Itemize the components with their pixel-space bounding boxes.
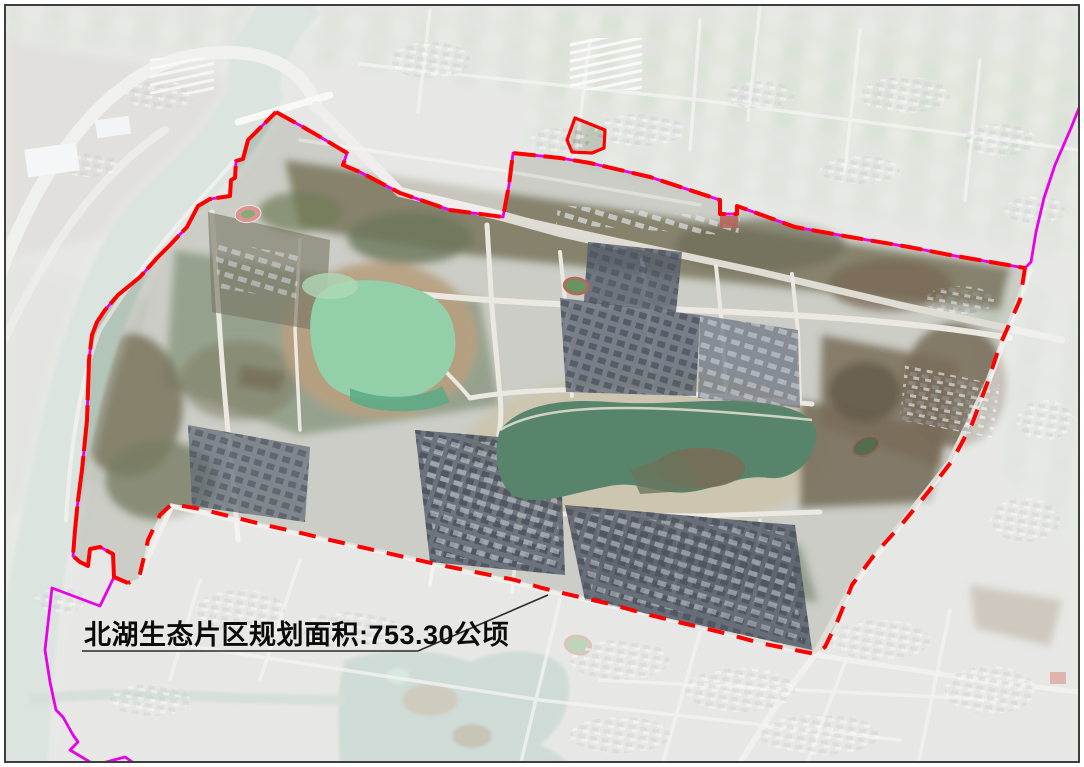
- map-figure: 北湖生态片区规划面积:753.30公顷: [0, 0, 1084, 767]
- satellite-planning-map: 北湖生态片区规划面积:753.30公顷: [0, 0, 1084, 767]
- area-annotation-label: 北湖生态片区规划面积:753.30公顷: [84, 620, 509, 650]
